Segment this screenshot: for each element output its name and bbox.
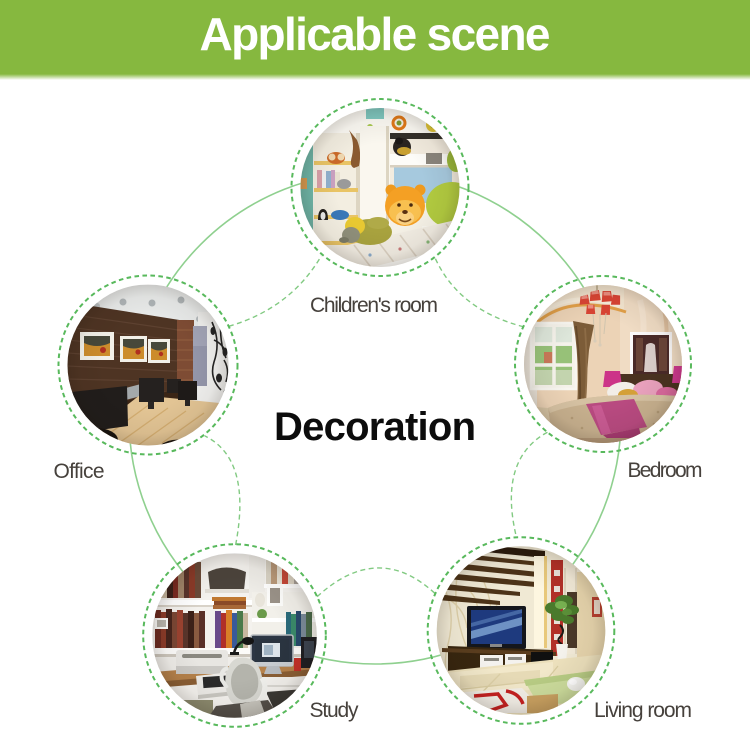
- svg-text:Living room: Living room: [594, 699, 692, 722]
- svg-text:Applicable scene: Applicable scene: [200, 8, 551, 60]
- svg-text:Office: Office: [54, 460, 105, 483]
- svg-text:Decoration: Decoration: [274, 405, 476, 449]
- svg-text:Bedroom: Bedroom: [628, 459, 703, 482]
- svg-text:Children's room: Children's room: [310, 294, 438, 317]
- svg-text:Study: Study: [310, 699, 360, 722]
